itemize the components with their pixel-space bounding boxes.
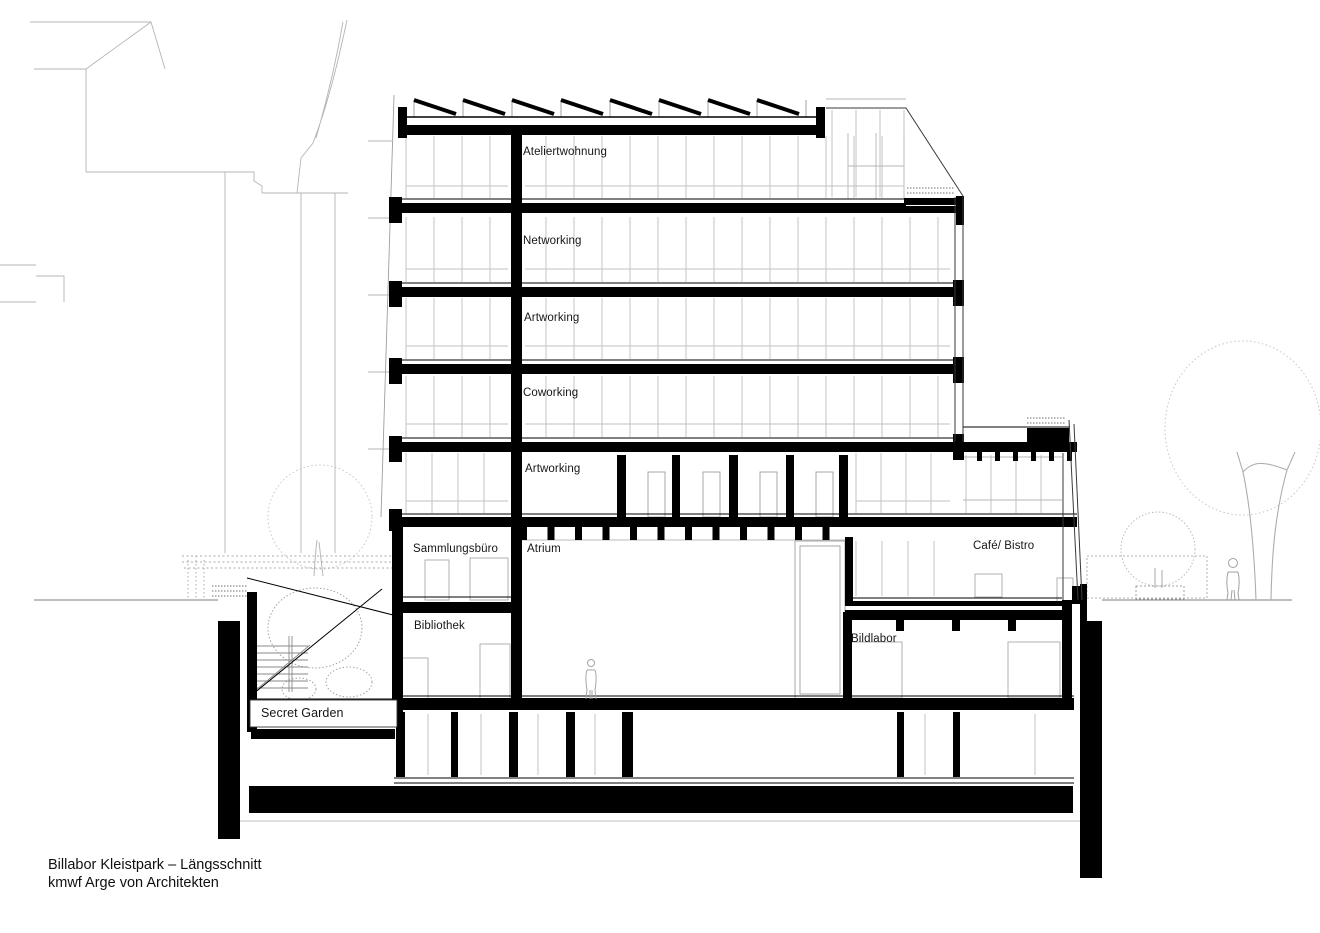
garden-tree xyxy=(268,588,362,668)
bildlabor-ceiling xyxy=(845,610,1063,620)
round-tree-right xyxy=(1121,512,1195,586)
label-coworking: Coworking xyxy=(523,387,578,399)
big-tree-right xyxy=(1165,341,1320,515)
garden-stairs xyxy=(256,645,310,690)
label-sammlungsbuero: Sammlungsbüro xyxy=(413,543,498,555)
section-linework xyxy=(0,0,1320,933)
planter-right xyxy=(1136,586,1184,599)
cafe-planter-base xyxy=(1027,428,1069,443)
architectural-section-drawing: Ateliertwohnung Networking Artworking Co… xyxy=(0,0,1320,933)
parapet-right xyxy=(816,107,825,138)
slab-artworking xyxy=(394,364,964,374)
room-fixture-outlines xyxy=(402,558,1073,700)
roof-slab xyxy=(399,125,823,135)
elevator-shaft xyxy=(795,541,845,699)
label-secret-garden: Secret Garden xyxy=(261,706,344,720)
label-networking: Networking xyxy=(523,235,582,247)
hedge-box-right xyxy=(1087,556,1207,598)
cafe-upper-transoms xyxy=(963,457,1062,500)
garden-canopy-lines xyxy=(247,578,401,694)
penthouse-interior xyxy=(826,99,906,199)
climbing-plants xyxy=(188,556,204,600)
retaining-wall-left xyxy=(218,621,240,839)
retaining-wall-right xyxy=(1080,621,1102,878)
slab-ground-ceiling xyxy=(394,517,1077,527)
garden-bush-1 xyxy=(326,667,372,697)
person-street xyxy=(1227,559,1239,601)
basement-floor xyxy=(394,698,1074,710)
hedge-on-garden-wall xyxy=(212,586,248,596)
slab-atelier xyxy=(394,203,906,213)
hedge-row-left xyxy=(182,556,400,568)
bildlabor-left-wall xyxy=(843,612,852,702)
roof-planter-base xyxy=(904,198,958,205)
drawing-title: Billabor Kleistpark – Längsschnitt xyxy=(48,857,262,873)
label-cafe-bistro: Café/ Bistro xyxy=(973,540,1034,552)
cafe-left-post xyxy=(845,537,853,603)
ground-slab-left xyxy=(394,602,515,613)
person-atrium xyxy=(586,660,596,700)
foundation-slab xyxy=(249,786,1073,813)
context-building-outline xyxy=(0,20,348,553)
central-wall xyxy=(511,130,522,702)
drawing-subtitle: kmwf Arge von Architekten xyxy=(48,875,219,891)
label-bibliothek: Bibliothek xyxy=(414,620,465,632)
label-bildlabor: Bildlabor xyxy=(851,633,897,645)
solar-panels xyxy=(414,100,799,114)
cut-structure xyxy=(218,107,1102,878)
label-artworking-lower: Artworking xyxy=(525,463,580,475)
penthouse-outline xyxy=(826,108,963,196)
label-atrium: Atrium xyxy=(527,543,561,555)
label-ateliertwohnung: Ateliertwohnung xyxy=(523,146,607,158)
label-artworking-upper: Artworking xyxy=(524,312,579,324)
left-wall-lower xyxy=(392,517,403,712)
slab-coworking xyxy=(394,442,1077,452)
parapet-left xyxy=(398,107,407,138)
garden-slab xyxy=(251,729,395,739)
slab-networking xyxy=(394,287,964,297)
planter-plants xyxy=(907,188,1066,423)
